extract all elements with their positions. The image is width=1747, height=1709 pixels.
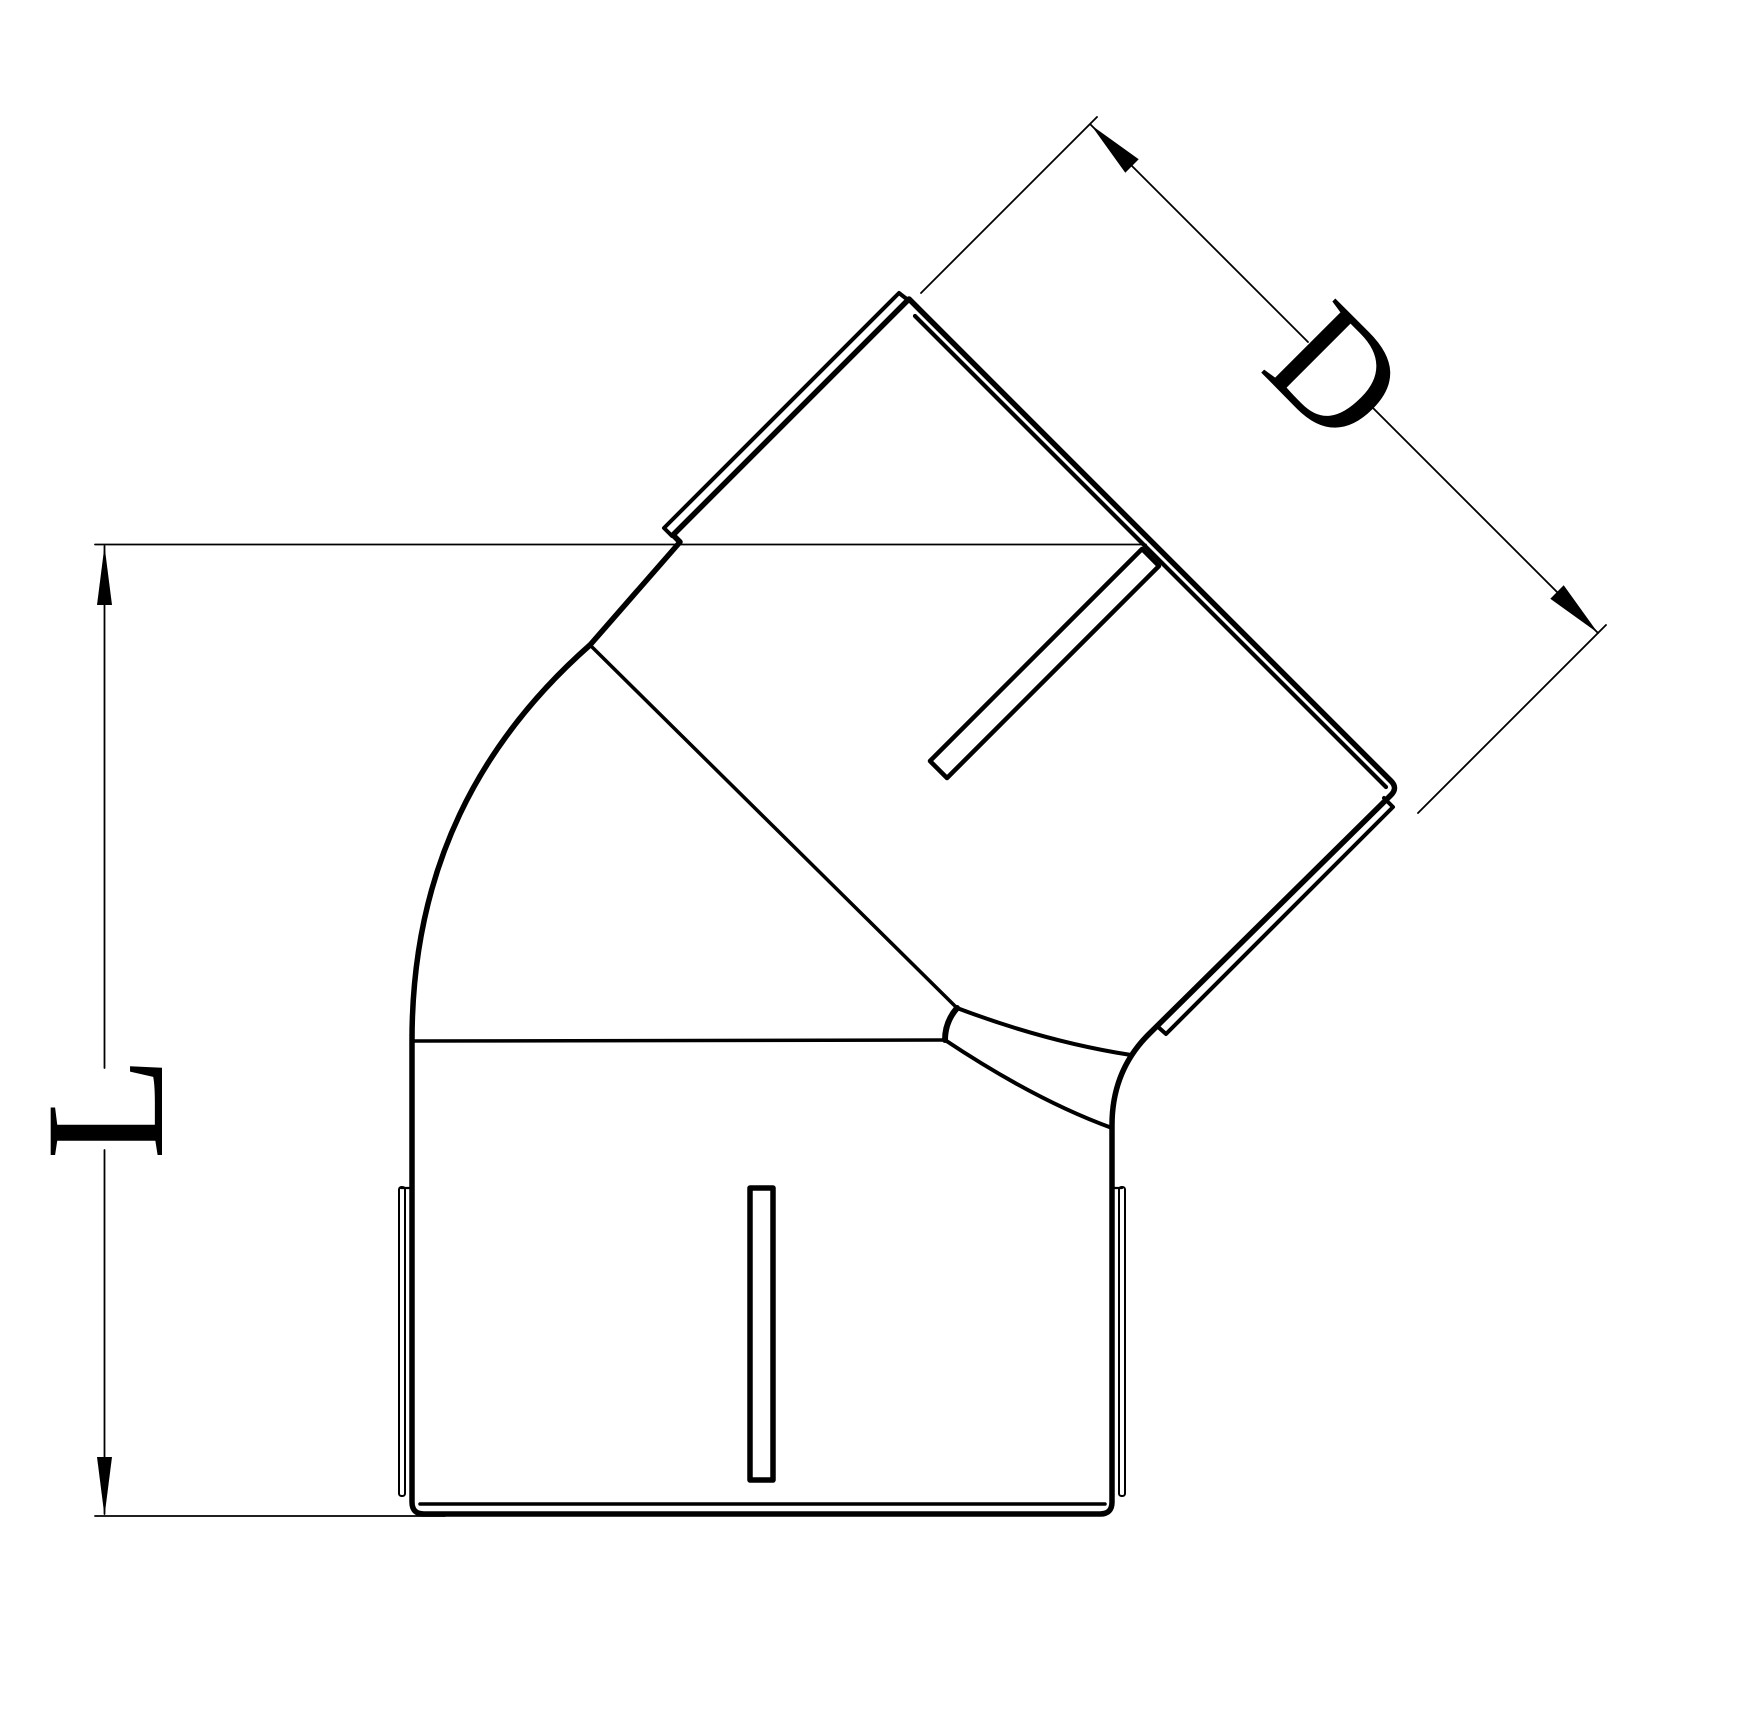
- upper-socket-left-lip-line: [664, 293, 908, 536]
- dimension-d-extension-line-bottom: [1418, 625, 1606, 813]
- technical-drawing-45-elbow: D L: [0, 0, 1747, 1709]
- lower-socket-right-lip-mark: [1119, 1187, 1125, 1496]
- miter-seam-line: [590, 645, 957, 1008]
- upper-socket-depth-slot: [930, 549, 1159, 778]
- elbow-main-contour: [412, 299, 1395, 1514]
- dimension-d-arrowhead-lower: [1550, 585, 1598, 633]
- throat-funnel-lower-line: [945, 1040, 1112, 1128]
- throat-funnel-upper-line: [957, 1008, 1131, 1055]
- elbow-outline: [399, 293, 1395, 1514]
- throat-neck-cap: [945, 1008, 957, 1040]
- lower-socket-left-lip-mark: [399, 1187, 405, 1496]
- dimension-d: [921, 117, 1606, 813]
- dimension-d-arrowhead-upper: [1091, 125, 1139, 173]
- dimension-l: [95, 545, 1146, 1517]
- dimension-l-arrowhead-top: [97, 546, 112, 605]
- lower-socket-depth-slot: [750, 1188, 773, 1480]
- dimension-l-label: L: [11, 1056, 199, 1160]
- dimension-d-extension-line-top: [921, 117, 1097, 293]
- upper-socket-right-lip-line: [1157, 798, 1393, 1034]
- body-seam-line: [413, 1040, 945, 1041]
- dimension-l-arrowhead-bottom: [97, 1457, 112, 1516]
- drawing-sheet: D L: [0, 0, 1747, 1709]
